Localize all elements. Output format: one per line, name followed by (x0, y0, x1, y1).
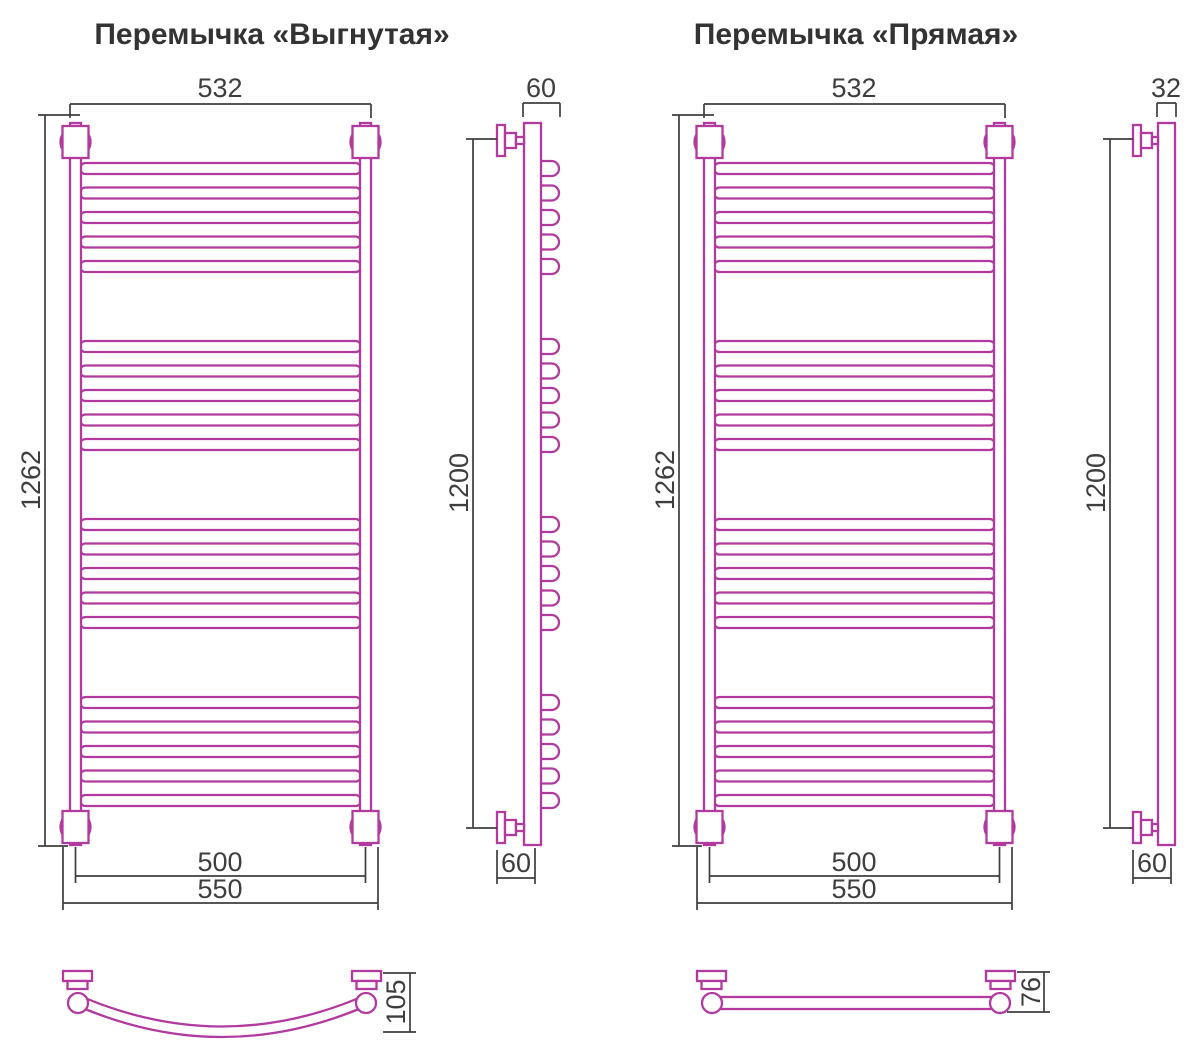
left-post (704, 123, 715, 845)
rung (80, 593, 361, 604)
rung (80, 237, 361, 248)
rung (714, 366, 995, 377)
dim-side-top-straight: 32 (1151, 73, 1181, 117)
rung (714, 697, 995, 708)
rung (80, 188, 361, 199)
curved-model: Перемычка «Выгнутая» 532 (16, 18, 560, 1037)
side-wall-fitting-top-straight (1133, 125, 1158, 156)
rung (714, 568, 995, 579)
title-straight: Перемычка «Прямая» (694, 18, 1018, 51)
front-view-curved: 532 1262 500 550 (16, 73, 381, 910)
mount-bracket-top-left (695, 126, 725, 158)
crossbar-foot-left-curved (63, 971, 92, 1013)
straight-model: Перемычка «Прямая» 532 (650, 18, 1181, 1013)
side-wall-fitting-bottom-straight (1133, 812, 1158, 843)
rung (714, 237, 995, 248)
left-post (70, 123, 81, 845)
rung (714, 212, 995, 223)
crossbar-foot-right-straight (986, 971, 1015, 1013)
dim-label-1200-straight: 1200 (1081, 453, 1111, 513)
dim-label-532-straight: 532 (831, 73, 876, 103)
right-post (994, 123, 1005, 845)
side-wall-fitting-bottom-curved (497, 812, 524, 843)
rung (80, 163, 361, 174)
drawing-canvas: Перемычка «Выгнутая» 532 (0, 0, 1200, 1054)
straight-bar (717, 997, 995, 1009)
dim-label-1262-curved: 1262 (16, 450, 46, 510)
rung (80, 212, 361, 223)
dim-label-60-bottom-straight: 60 (1137, 848, 1167, 878)
rung (714, 617, 995, 628)
dim-width-top-curved: 532 (70, 73, 371, 118)
dim-label-60-top-curved: 60 (526, 73, 556, 103)
rung (80, 341, 361, 352)
mount-bracket-top-left (61, 126, 91, 158)
rung (80, 771, 361, 782)
rung (714, 439, 995, 450)
dim-label-76: 76 (1016, 977, 1046, 1007)
rung (714, 163, 995, 174)
dim-side-height-curved: 1200 (444, 139, 497, 828)
rung (714, 341, 995, 352)
mount-bracket-top-right (985, 126, 1015, 158)
dim-side-height-straight: 1200 (1081, 139, 1133, 828)
rung (714, 261, 995, 272)
rung (714, 544, 995, 555)
crossbar-foot-right-curved (352, 971, 381, 1013)
rung (714, 519, 995, 530)
dim-label-1200-curved: 1200 (444, 453, 474, 513)
dim-label-32-top-straight: 32 (1151, 73, 1181, 103)
rung (80, 261, 361, 272)
front-view-straight: 532 1262 500 550 (650, 73, 1015, 910)
rung (714, 188, 995, 199)
rung (80, 746, 361, 757)
side-view-curved: 60 1200 60 (444, 73, 560, 884)
mount-bracket-top-right (351, 126, 381, 158)
rung-group-curved (80, 163, 361, 806)
dim-side-bottom-curved: 60 (497, 848, 535, 884)
dim-side-top-curved: 60 (523, 73, 560, 117)
rung (80, 519, 361, 530)
mount-bracket-bottom-left (61, 811, 91, 843)
rung (80, 722, 361, 733)
dim-label-532-curved: 532 (197, 73, 242, 103)
side-post-straight (1158, 123, 1175, 845)
dim-label-105: 105 (381, 979, 411, 1024)
dim-label-60-bottom-curved: 60 (501, 848, 531, 878)
crossbar-foot-left-straight (697, 971, 726, 1013)
side-wall-fitting-top-curved (497, 125, 524, 156)
dim-side-bottom-straight: 60 (1133, 848, 1171, 884)
mount-bracket-bottom-right (985, 811, 1015, 843)
rung (80, 617, 361, 628)
crossbar-top-view-curved: 105 (63, 971, 416, 1037)
rung (714, 795, 995, 806)
side-post-curved (524, 123, 541, 845)
rung (714, 722, 995, 733)
dim-label-550-straight: 550 (831, 874, 876, 904)
rung (80, 415, 361, 426)
rung (80, 366, 361, 377)
mount-bracket-bottom-left (695, 811, 725, 843)
rung (80, 439, 361, 450)
rung (80, 568, 361, 579)
dim-label-500-curved: 500 (197, 847, 242, 877)
rung-group-straight (714, 163, 995, 806)
rung (80, 795, 361, 806)
dim-label-550-curved: 550 (197, 874, 242, 904)
right-post (360, 123, 371, 845)
mount-bracket-bottom-right (351, 811, 381, 843)
dim-crossbar-depth-curved: 105 (381, 973, 416, 1032)
rung (80, 544, 361, 555)
rung (714, 593, 995, 604)
side-view-straight: 32 1200 60 (1081, 73, 1181, 884)
dim-width-top-straight: 532 (704, 73, 1005, 118)
crossbar-top-view-straight: 76 (697, 971, 1050, 1013)
rung (80, 390, 361, 401)
rung (80, 697, 361, 708)
rung (714, 746, 995, 757)
title-curved: Перемычка «Выгнутая» (94, 18, 449, 51)
rung (714, 771, 995, 782)
rung (714, 390, 995, 401)
dim-label-1262-straight: 1262 (650, 450, 680, 510)
rung (714, 415, 995, 426)
dim-label-500-straight: 500 (831, 847, 876, 877)
